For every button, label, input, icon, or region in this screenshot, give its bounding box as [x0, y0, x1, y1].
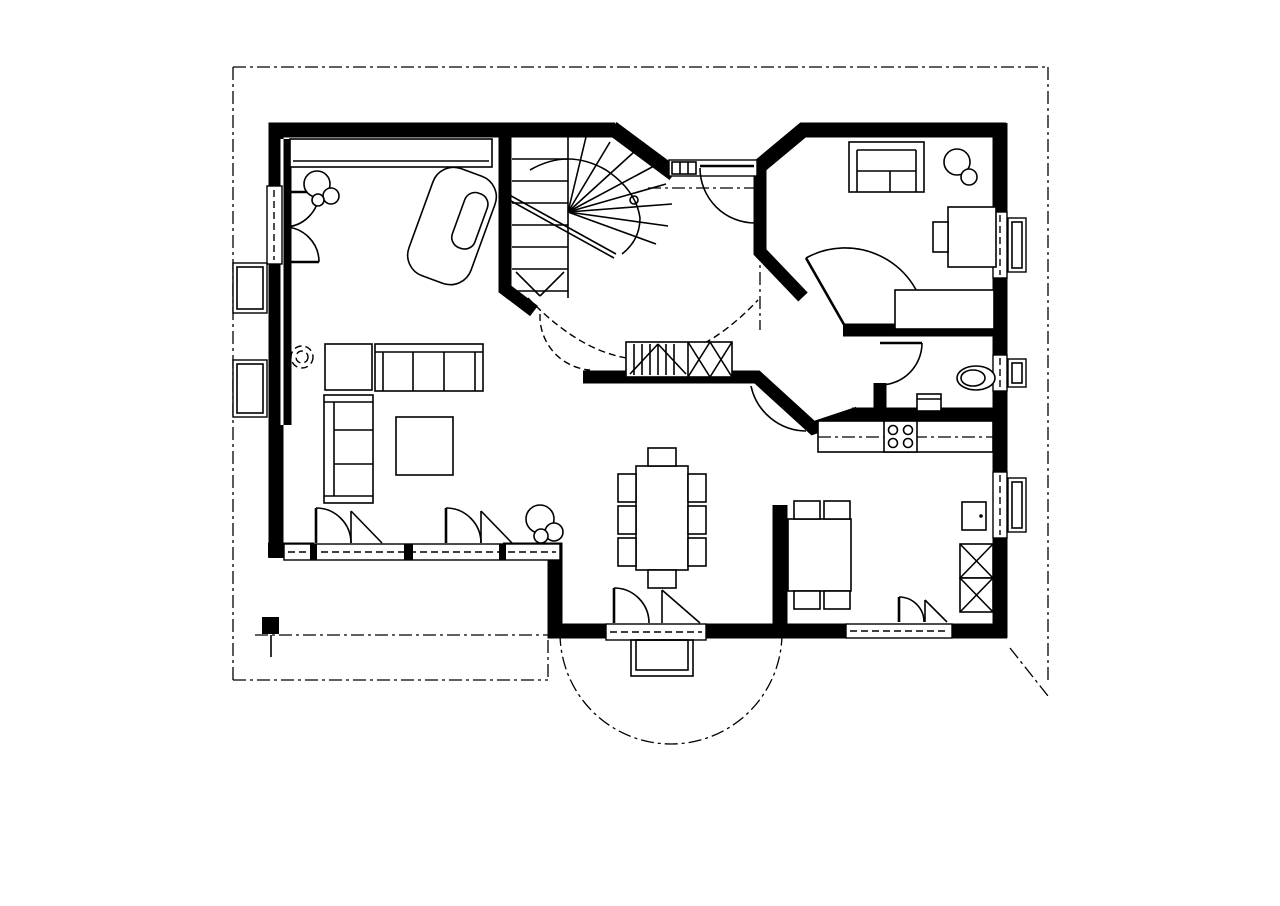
wc-window	[993, 355, 1026, 391]
floor-plan-drawing	[0, 0, 1280, 906]
coffee-table	[396, 417, 453, 475]
sofa	[375, 344, 483, 391]
plant	[304, 171, 339, 206]
buero-window	[993, 212, 1026, 278]
furniture-buero	[849, 142, 996, 329]
chaise-longue	[401, 161, 502, 291]
sideboard	[290, 139, 492, 167]
guest-bed	[895, 290, 994, 329]
stair-handrail	[502, 196, 614, 258]
armchair	[325, 344, 372, 390]
desk-chair	[933, 222, 948, 252]
stove	[884, 421, 917, 452]
kitchen-table-set	[788, 501, 851, 609]
office-sofa	[849, 142, 924, 192]
l-sofa	[324, 395, 373, 503]
essen-wall	[583, 377, 858, 428]
entry-side-panel	[672, 162, 696, 174]
fridge-box	[960, 544, 993, 578]
hall-wall	[760, 168, 803, 297]
dining-set	[618, 448, 706, 588]
plant	[944, 149, 977, 185]
plant	[526, 505, 563, 543]
oven-box	[960, 578, 993, 612]
furniture-wohnen	[290, 139, 563, 543]
left-window-box	[233, 360, 267, 417]
wardrobe	[626, 342, 732, 377]
level-marker	[262, 617, 279, 634]
dining-table	[636, 466, 688, 570]
toilet	[917, 394, 941, 411]
kitchen-fixtures	[788, 421, 993, 612]
floor-plan-page	[0, 0, 1280, 906]
desk	[948, 207, 996, 267]
terrace-arc	[560, 633, 782, 744]
buero-door-leaf	[806, 258, 846, 328]
entry-chamfer-left	[612, 128, 674, 174]
left-window-box	[233, 263, 267, 313]
interior-walls	[505, 135, 1006, 428]
wc-fixtures	[917, 366, 995, 411]
kitchen-table	[788, 519, 851, 591]
kueche-window	[993, 472, 1026, 538]
kamin-circle	[291, 346, 313, 368]
